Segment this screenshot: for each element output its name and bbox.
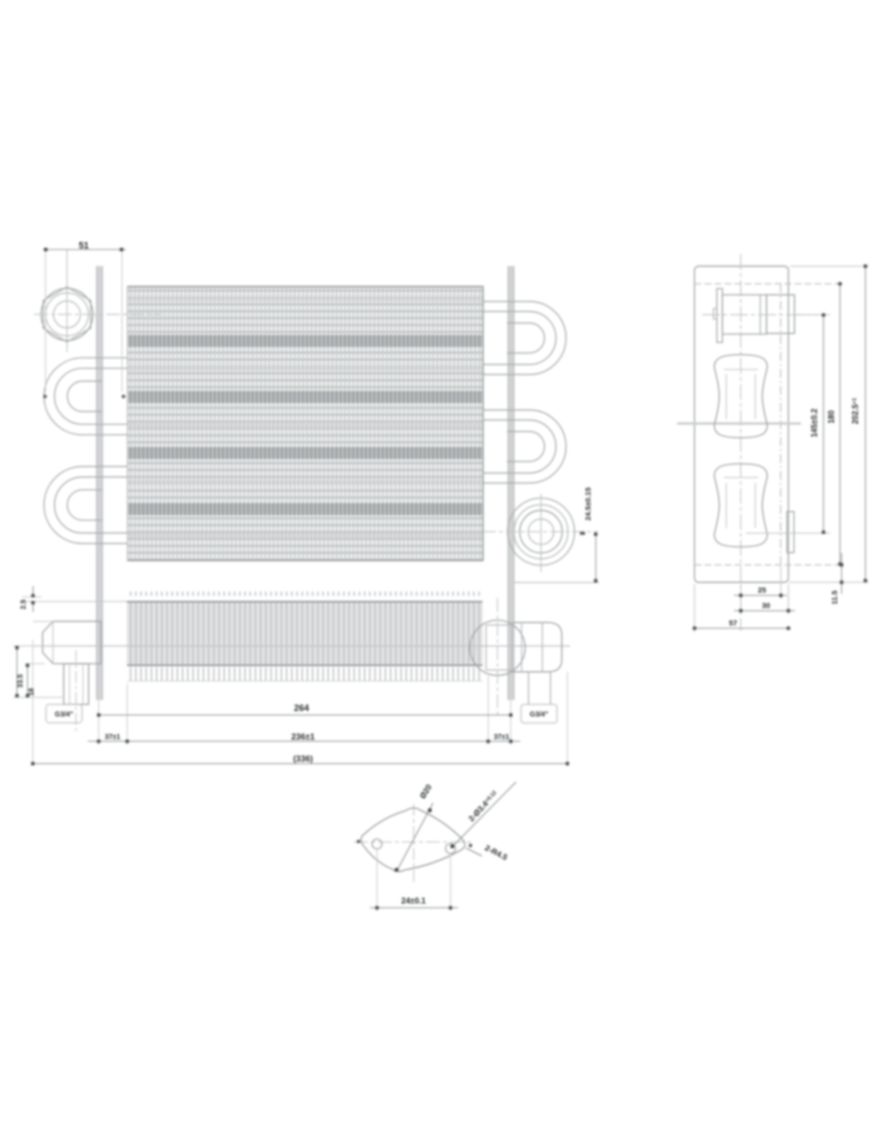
svg-text:180: 180 <box>827 410 836 424</box>
svg-text:51: 51 <box>79 241 89 251</box>
svg-text:57: 57 <box>729 619 737 628</box>
svg-text:G3/4": G3/4" <box>530 712 549 719</box>
svg-text:2-R4.5: 2-R4.5 <box>483 843 509 862</box>
svg-text:236±1: 236±1 <box>291 731 315 741</box>
svg-text:11.5: 11.5 <box>830 590 839 604</box>
svg-text:25: 25 <box>758 586 766 595</box>
svg-text:18: 18 <box>29 688 36 696</box>
svg-text:Ø20: Ø20 <box>418 782 434 800</box>
svg-text:37±1: 37±1 <box>105 734 121 741</box>
svg-text:202.5+1: 202.5+1 <box>851 398 860 424</box>
svg-text:145±0.2: 145±0.2 <box>810 408 819 437</box>
svg-text:264: 264 <box>294 703 309 713</box>
svg-text:24±0.1: 24±0.1 <box>401 897 426 906</box>
svg-text:2.5: 2.5 <box>21 600 28 610</box>
svg-text:37±1: 37±1 <box>494 734 510 741</box>
svg-text:33.5: 33.5 <box>18 674 25 688</box>
svg-text:24.5±0.15: 24.5±0.15 <box>584 487 593 520</box>
svg-text:(336): (336) <box>293 754 313 764</box>
svg-text:2-Ø3.4+0.12: 2-Ø3.4+0.12 <box>467 789 500 823</box>
svg-text:G3/4": G3/4" <box>55 712 74 719</box>
svg-text:30: 30 <box>762 601 770 610</box>
